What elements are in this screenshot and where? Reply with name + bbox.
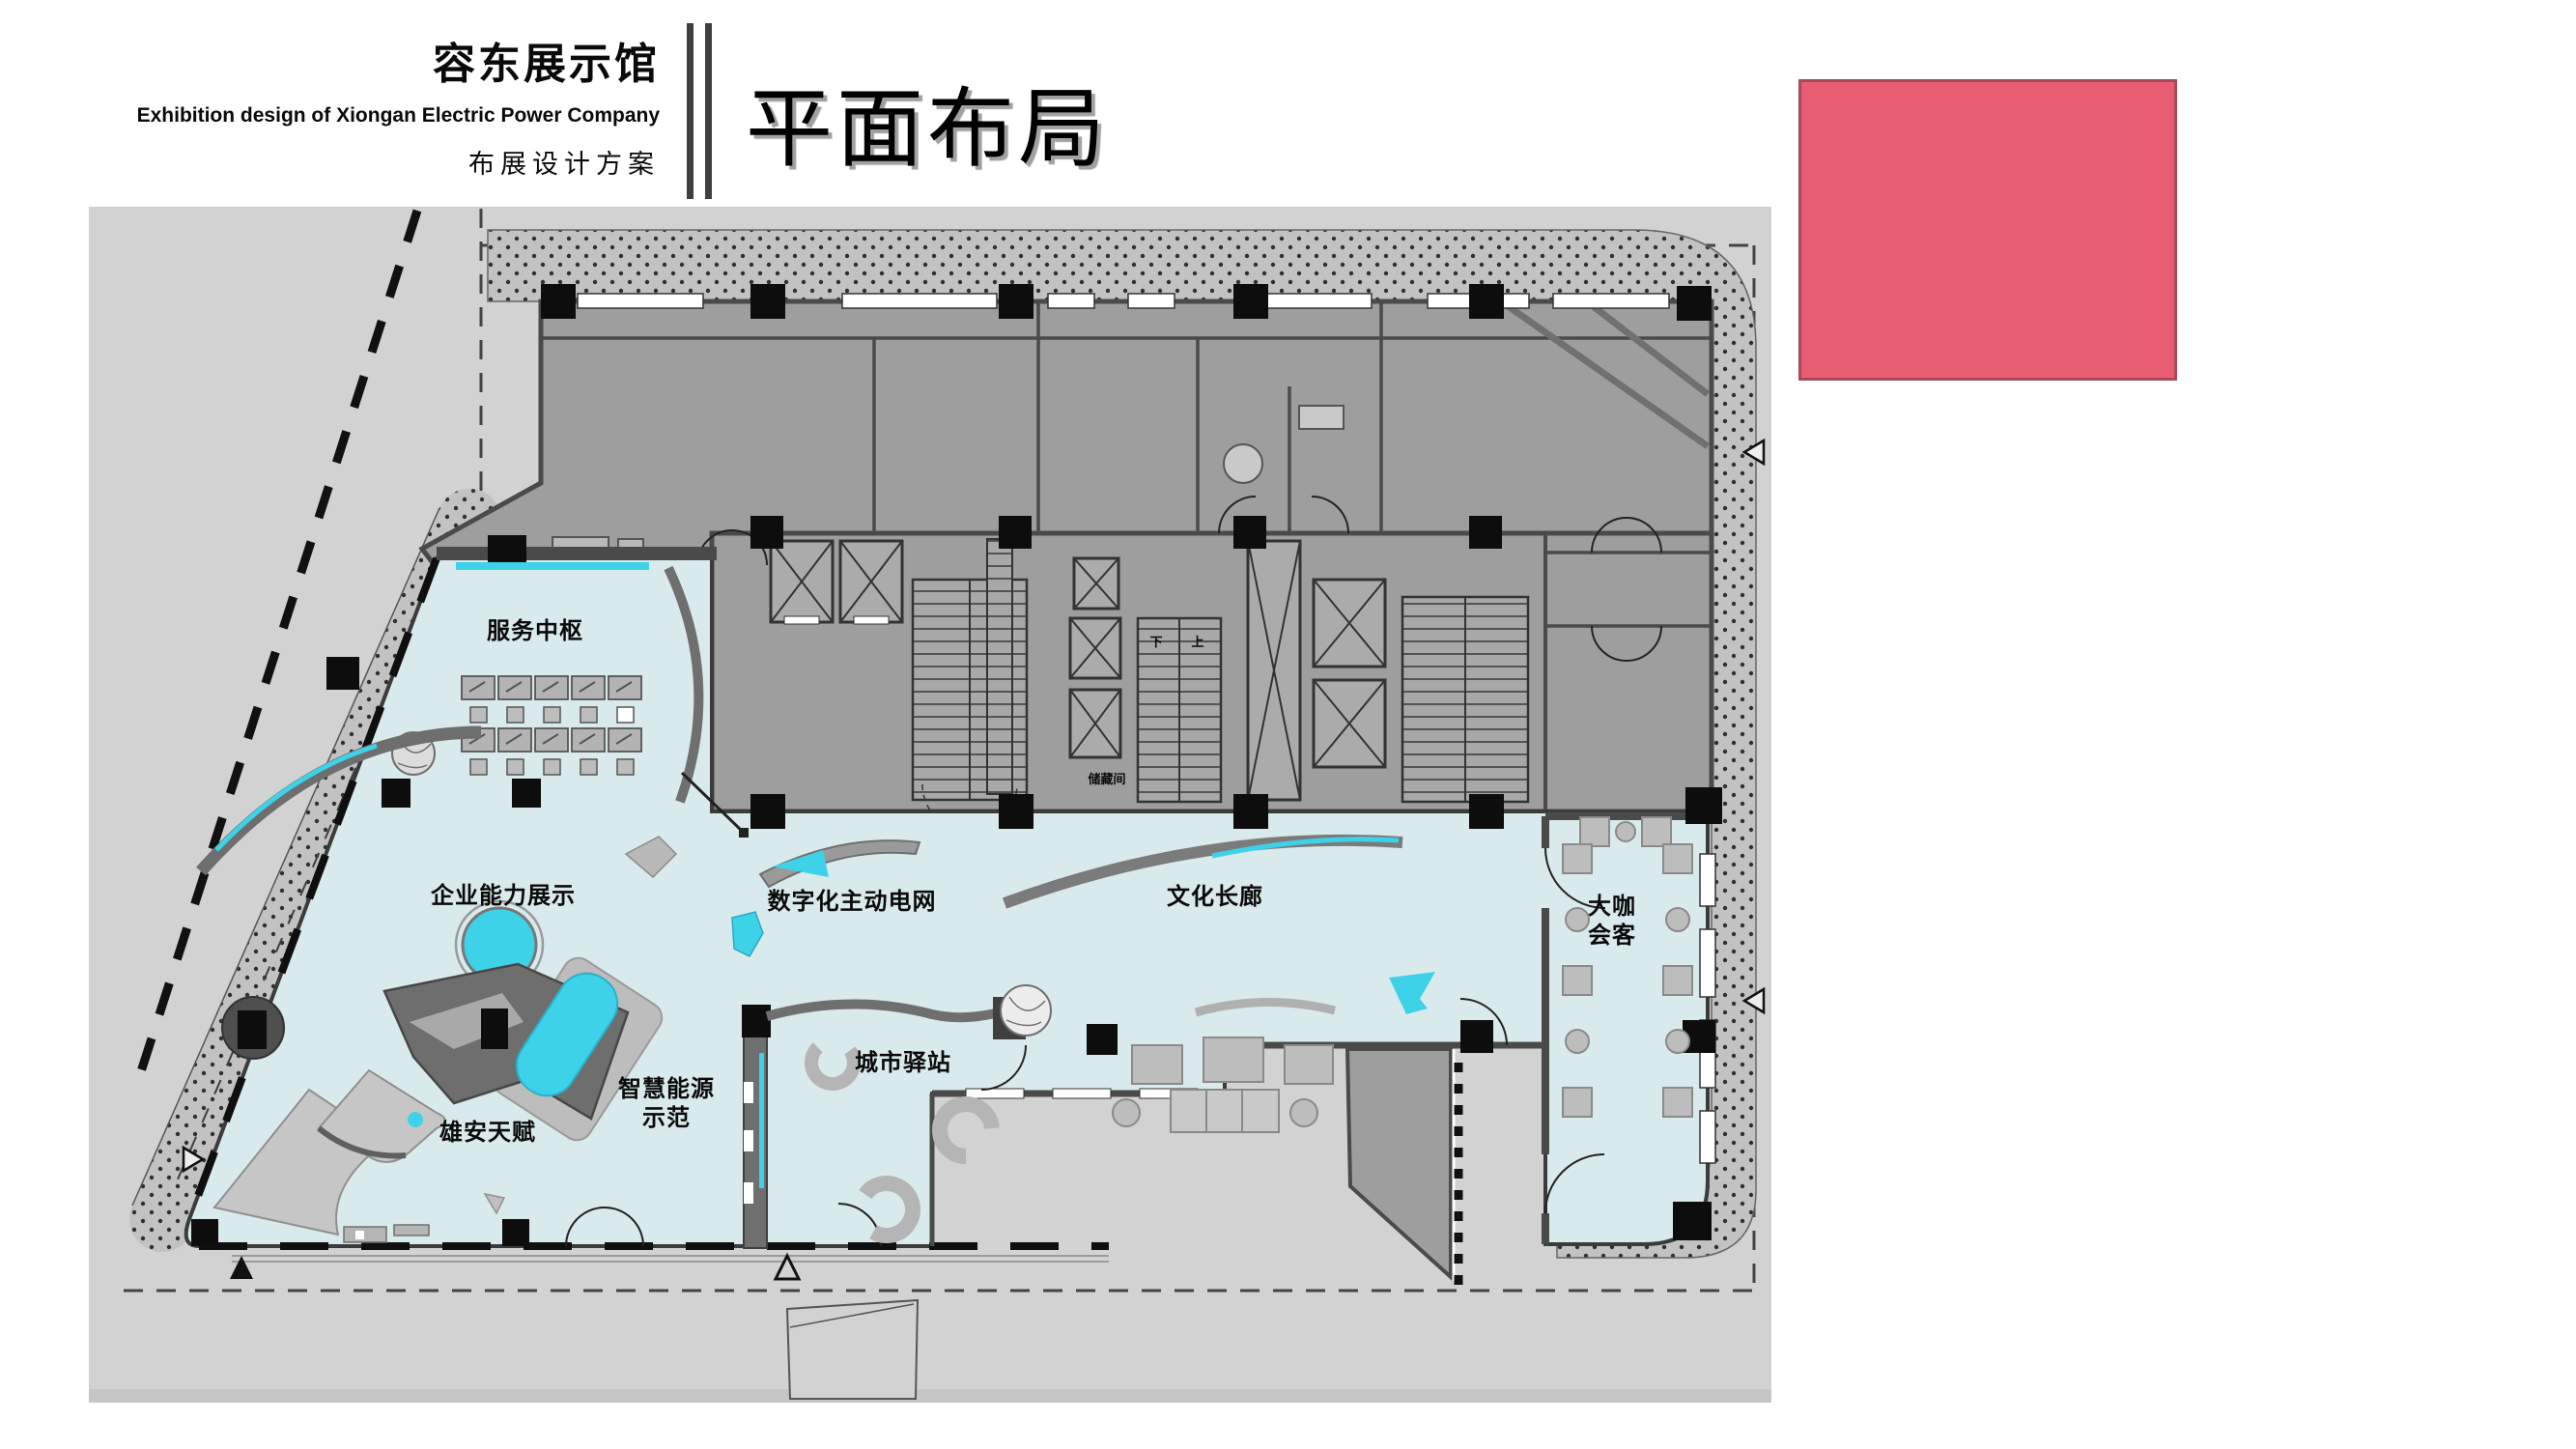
floor-plan	[0, 0, 2576, 1449]
slide: 容东展示馆 Exhibition design of Xiongan Elect…	[0, 0, 2576, 1449]
